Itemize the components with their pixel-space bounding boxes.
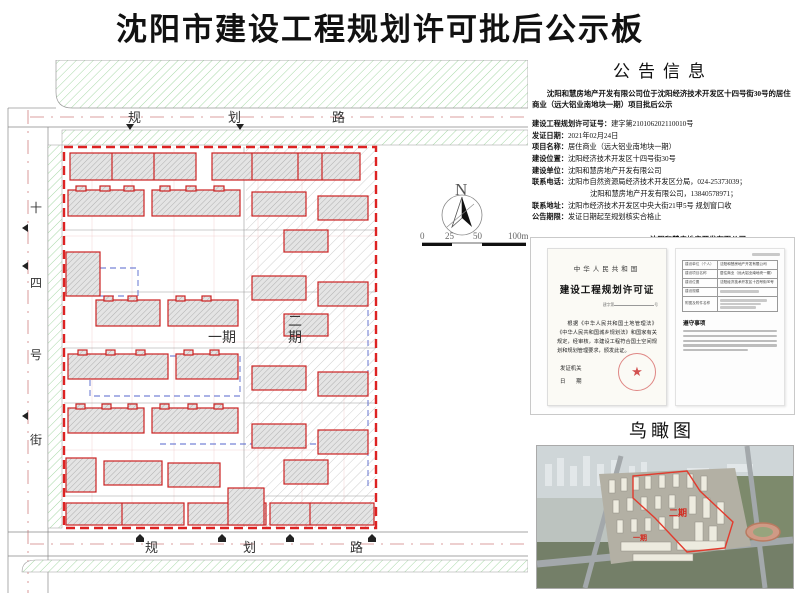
crossing-marker-icon (22, 262, 28, 270)
table-row: 建设规模 (683, 287, 778, 296)
road-left-char-3: 号 (30, 348, 42, 362)
certificate-country: 中华人民共和国 (548, 263, 666, 273)
road-bottom-char-3: 路 (350, 540, 363, 555)
permit-certificate-front: 中华人民共和国 建设工程规划许可证 建字第号 根据《中华人民共和国土地管理法》《… (547, 248, 667, 406)
green-strip-site-west (48, 145, 62, 528)
permit-certificate-back: 建设单位（个人）沈阳和慧房地产开发有限公司 建设项目名称居住商业（远大铝业南地块… (675, 248, 785, 406)
road-left-char-1: 十 (30, 201, 42, 215)
entrance-marker-icon (136, 534, 144, 542)
road-bottom-char-2: 划 (243, 540, 256, 555)
notes-title: 遵守事项 (683, 319, 784, 327)
crossing-marker-icon (22, 412, 28, 420)
entrance-marker-icon (368, 534, 376, 542)
bird-phase1-label: 一期 (633, 533, 647, 542)
crossing-marker-icon (22, 224, 28, 232)
bird-view-image: 二期 一期 (536, 445, 794, 589)
announcement-intro: 沈阳和慧房地产开发有限公司位于沈阳经济技术开发区十四号街30号的居住商业（远大铝… (532, 88, 794, 111)
road-top: 规 划 路 (8, 108, 528, 130)
road-top-char-1: 规 (128, 110, 141, 125)
road-bottom-char-1: 规 (145, 540, 158, 555)
green-strip-south (22, 560, 528, 572)
site-plan: 规 划 路 十 四 号 街 规 划 路 (0, 60, 528, 593)
svg-text:期: 期 (288, 330, 302, 346)
road-left: 十 四 号 街 (8, 108, 48, 593)
field-address: 联系地址：沈阳市经济技术开发区中央大街21甲5号 规划窗口收 (532, 201, 794, 213)
notes-lines (676, 330, 784, 351)
green-strip-site-north (62, 130, 528, 145)
field-location: 建设位置：沈阳经济技术开发区十四号街30号 (532, 154, 794, 166)
field-project-name: 项目名称：居住商业（远大铝业南地块一期） (532, 142, 794, 154)
field-phone: 联系电话：沈阳市自然资源局经济技术开发区分局，024-25373039； (532, 177, 794, 189)
svg-text:50: 50 (473, 231, 483, 241)
certificate-serial (676, 252, 780, 258)
certificate-number-line: 建字第号 (548, 302, 658, 308)
field-builder: 建设单位：沈阳和慧房地产开发有限公司 (532, 166, 794, 178)
certificate-title: 建设工程规划许可证 (548, 282, 666, 296)
bird-phase2-label: 二期 (669, 507, 687, 518)
right-panel: 公告信息 沈阳和慧房地产开发有限公司位于沈阳经济技术开发区十四号街30号的居住商… (528, 55, 800, 272)
table-row: 附图及附件名称 (683, 296, 778, 312)
certificate-footer: 发证机关 日 期 (560, 363, 582, 389)
date-label: 日 期 (560, 376, 582, 389)
road-top-char-3: 路 (332, 110, 345, 125)
certificate-photo: 中华人民共和国 建设工程规划许可证 建字第号 根据《中华人民共和国土地管理法》《… (530, 237, 795, 415)
road-left-char-4: 街 (30, 433, 42, 447)
phase2-label: 二 期 (288, 315, 302, 346)
road-top-char-2: 划 (228, 110, 241, 125)
compass-icon: N (442, 180, 482, 235)
track-infield (753, 527, 773, 537)
notice-board: 沈阳市建设工程规划许可批后公示板 规 划 路 (0, 0, 800, 593)
svg-text:N: N (455, 180, 467, 199)
table-row: 建设单位（个人）沈阳和慧房地产开发有限公司 (683, 260, 778, 269)
field-issue-date: 发证日期：2021年02月24日 (532, 131, 794, 143)
certificate-body: 根据《中华人民共和国土地管理法》《中华人民共和国城乡规划法》和国家有关规定，经审… (557, 320, 657, 355)
issuer-label: 发证机关 (560, 363, 582, 376)
scale-bar: 0 25 50 100m (420, 231, 528, 246)
field-period: 公告期限：发证日期起至规划核实合格止 (532, 212, 794, 224)
green-strip-north (56, 60, 528, 108)
commercial-strip-buildings (70, 153, 360, 180)
announcement-title: 公告信息 (532, 57, 794, 82)
road-bottom: 规 划 路 (8, 532, 528, 572)
road-left-char-2: 四 (30, 276, 42, 290)
entrance-marker-icon (218, 534, 226, 542)
svg-text:二: 二 (288, 315, 302, 330)
svg-text:25: 25 (445, 231, 455, 241)
site-plan-drawing: 规 划 路 十 四 号 街 规 划 路 (0, 60, 528, 593)
svg-text:100m: 100m (508, 231, 528, 241)
table-row: 建设位置沈阳经济技术开发区十四号街30号 (683, 278, 778, 287)
entrance-marker-icon (286, 534, 294, 542)
table-row: 建设项目名称居住商业（远大铝业南地块一期） (683, 269, 778, 278)
bird-view-title: 鸟瞰图 (528, 417, 796, 443)
field-phone-line2: 沈阳和慧房地产开发有限公司，13840578971； (532, 189, 794, 201)
svg-text:0: 0 (420, 231, 425, 241)
page-title: 沈阳市建设工程规划许可批后公示板 (0, 4, 760, 49)
permit-info-table: 建设单位（个人）沈阳和慧房地产开发有限公司 建设项目名称居住商业（远大铝业南地块… (682, 260, 778, 313)
field-permit-no: 建设工程规划许可证号：建字第210106202110010号 (532, 119, 794, 131)
red-seal-icon: ★ (618, 353, 656, 391)
phase1-label: 一期 (208, 330, 236, 346)
